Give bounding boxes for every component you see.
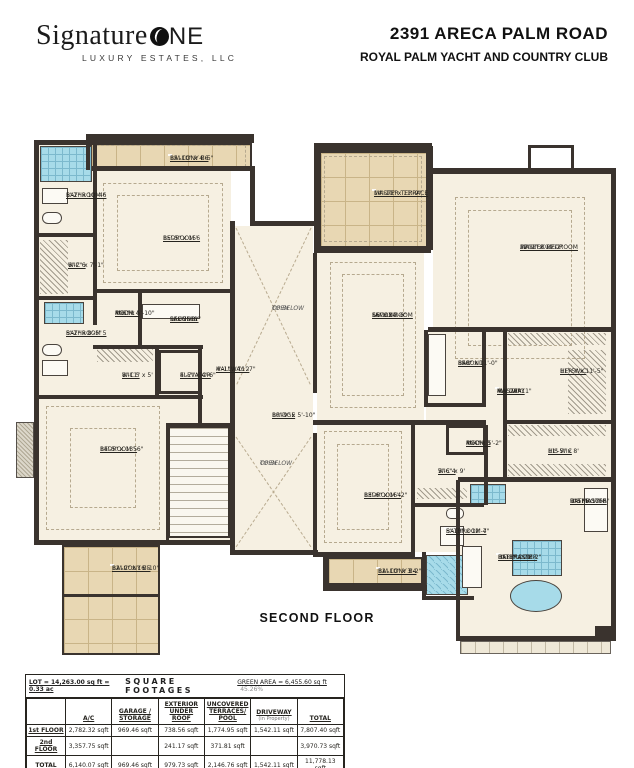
closet-hatch [40,240,68,294]
bath-fixture [42,212,62,224]
footage-cell: 1,774.95 sqft [204,725,250,737]
wall-segment [424,403,484,407]
floor-name-label: SECOND FLOOR [259,611,374,625]
wall-segment [415,503,484,507]
room-dashed-outline [468,210,572,346]
room-label-line: 5'-2" x 10'-4" [66,192,106,200]
green-area-percent: 45.26% [240,686,263,693]
wall-segment [232,550,318,555]
wall-segment [38,233,96,237]
wall-segment [422,596,474,600]
column-header: TOTAL [297,699,343,725]
bath-fixture [42,188,68,204]
tiled-wet-area [470,484,506,504]
wall-segment [93,345,203,349]
footage-cell: 2,782.32 sqft [66,725,112,737]
tiled-wet-area [40,146,92,182]
wall-segment [250,221,318,226]
table-row: TOTAL6,140.07 sqft969.46 sqft979.73 sqft… [27,756,344,768]
wall-segment [503,330,507,481]
wall-segment [456,480,460,640]
footage-cell: 3,357.75 sqft [66,737,112,756]
wall-segment [155,347,159,397]
room-label-line: 12'-9" x 16'-10" [112,565,159,573]
column-header: EXTERIORUNDER ROOF [158,699,204,725]
column-header: UNCOVEREDTERRACES/ POOL [204,699,250,725]
room-label-line: 4' x 24'-11" [497,388,532,396]
room-dashed-outline [337,444,389,530]
footage-cell: 1,542.11 sqft [251,756,297,768]
room-label-line: 14'-5" x 13'-6" [100,446,143,454]
room-label-line: TO BELOW [272,305,304,313]
footage-cell: 241.17 sqft [158,737,204,756]
room-label-line: 5'-2" x 8'-5" [66,330,102,338]
footage-cell [112,737,158,756]
staircase [168,426,230,538]
wall-segment [428,327,616,332]
room-label: MASTERHALLWAY4' x 24'-11" [495,387,499,389]
wall-segment [595,626,615,638]
wall-segment [411,425,415,555]
room-label: BALCONY B411'-10" x 3'-2" [376,567,380,569]
room-label-line: 8'-0" x 11'-0" [458,360,498,368]
green-area-label: GREEN AREA = 6,455.60 sq ft [237,679,327,686]
footage-cell: 7,807.40 sqft [297,725,343,737]
wall-segment [314,143,432,151]
closet-hatch [508,464,606,476]
room-label-line: 4'-1" x 11'-7" [216,366,256,374]
footage-cell: 1,542.11 sqft [251,725,297,737]
room-label-line: 13'-6" x 16'-2" [364,492,407,500]
table-row: 2nd FLOOR3,357.75 sqft241.17 sqft371.81 … [27,737,344,756]
header-row: A/CGARAGE /STORAGEEXTERIORUNDER ROOFUNCO… [27,699,344,725]
wall-segment [424,330,428,407]
wall-segment [313,253,317,393]
wall-segment [313,433,317,555]
room-dashed-outline [70,428,136,508]
wall-segment [314,143,319,253]
bath-fixture [42,344,62,356]
square-footage-table: LOT = 14,263.00 sq ft = 0.33 ac SQUARE F… [25,674,345,768]
room-label-line: 4'-7" x 4'-6" [180,372,216,380]
footage-grid: A/CGARAGE /STORAGEEXTERIORUNDER ROOFUNCO… [26,698,344,768]
row-label: TOTAL [27,756,66,768]
wall-segment [230,221,235,555]
wall-segment [428,168,616,174]
wall-segment [313,552,415,557]
room-label-line: 11'-5" x 8' [548,448,579,456]
room-label-line: 5'-10" x 12'-7" [446,528,489,536]
wall-segment [93,289,234,293]
wall-segment [611,168,616,640]
room-label-line: 10'-9" x 5'-10" [272,412,315,420]
footage-cell: 3,970.73 sqft [297,737,343,756]
room-label-line: 9'-5" x 17'-6" [570,498,610,506]
table-title: SQUARE FOOTAGES [125,677,237,695]
column-header: GARAGE /STORAGE [112,699,158,725]
terrace-edge-band [460,641,611,654]
wall-segment [484,425,488,505]
room-label-line: 15'-5" x 15' [163,235,198,243]
closet-hatch [568,350,606,414]
room-label-line: TO BELOW [260,460,292,468]
room-label: BALCONY B615'-10" x 4'-5" [168,154,172,156]
room-dashed-outline [117,195,209,271]
column-header: DRIVEWAY(in Property) [251,699,297,725]
room-label: BATHROOM 45'-10" x 12'-7" [444,527,448,529]
wall-segment [138,293,142,348]
room-label-line: 4'-4" x 5'-2" [466,440,502,448]
open-to-below-cross [236,437,311,547]
closet-hatch [97,349,153,362]
room-label-line: 5'-6" x 9' [438,468,465,476]
room-label-line: 16' x 24'-6" [372,312,407,320]
wall-segment [62,594,160,597]
room-label-line: 22'-1" x 19'-2" [520,244,563,252]
room-label-line: 8'-11" x 5' [122,372,153,380]
footage-cell: 2,146.76 sqft [204,756,250,768]
wall-segment [38,296,96,300]
footage-cell: 371.81 sqft [204,737,250,756]
room-label-line: 6'-2" x 7'-1" [68,262,104,270]
room-label-line: 14'-10" x 11'-9" [374,190,421,198]
wall-segment [34,140,39,545]
footage-cell: 969.46 sqft [112,756,158,768]
wall-segment [456,636,616,641]
room-label: MASTER TERRACE14'-10" x 11'-9" [372,189,376,191]
wall-segment [314,248,431,253]
tiled-wet-area [44,302,84,324]
wall-segment [313,420,486,425]
footage-cell: 738.56 sqft [158,725,204,737]
wall-segment [482,330,486,407]
bath-fixture [584,488,608,532]
room-label-line: 11'-5" x 11'-5" [560,368,603,376]
corner-cell [27,699,66,725]
wall-segment [198,347,202,423]
wall-segment [168,423,233,426]
bath-fixture [42,360,68,376]
wall-segment [323,585,427,591]
wall-segment [34,540,234,545]
wall-segment [92,166,255,171]
wall-segment [458,477,613,482]
room-label-line: 9' x 7'-11" [170,316,201,324]
wall-segment [428,146,433,250]
room-label-line: 8'-11" x 21'-2" [498,554,541,562]
footage-cell: 979.73 sqft [158,756,204,768]
wall-segment [38,395,203,399]
bath-fixture [446,508,464,519]
closet-hatch [508,425,606,436]
footage-cell: 969.46 sqft [112,725,158,737]
table-title-row: LOT = 14,263.00 sq ft = 0.33 ac SQUARE F… [26,675,344,698]
wall-segment [422,552,426,600]
balcony-deck [62,545,160,655]
footage-cell: 6,140.07 sqft [66,756,112,768]
wall-segment [86,134,254,143]
room-label-line: 11'-10" x 3'-2" [378,568,421,576]
footage-cell: 11,778.13 sqft [297,756,343,768]
row-label: 2nd FLOOR [27,737,66,756]
wall-segment [323,557,327,589]
page: SignatureNE LUXURY ESTATES, LLC 2391 ARE… [0,0,634,768]
row-label: 1st FLOOR [27,725,66,737]
bath-fixture [462,546,482,588]
wall-segment [505,420,613,424]
bath-fixture [428,334,446,396]
chimney [16,422,34,478]
footage-cell [251,737,297,756]
room-label-line: 4'-6" x 5'-10" [115,310,155,318]
wall-segment [166,423,169,543]
room-dashed-outline [324,156,422,242]
column-header: A/C [66,699,112,725]
bathtub [510,580,562,612]
lot-size-label: LOT = 14,263.00 sq ft = 0.33 ac [29,679,125,693]
table-row: 1st FLOOR2,782.32 sqft969.46 sqft738.56 … [27,725,344,737]
wall-segment [86,134,90,170]
floor-plan: BALCONY B615'-10" x 4'-5"BATHROOM 65'-2"… [0,0,634,768]
room-dashed-outline [342,274,404,396]
room-label-line: 15'-10" x 4'-5" [170,155,213,163]
room-label: BALCONY B512'-9" x 16'-10" [110,564,114,566]
room-label: HER MASTERBATHROOM8'-11" x 21'-2" [496,553,500,555]
wall-segment [250,166,255,226]
